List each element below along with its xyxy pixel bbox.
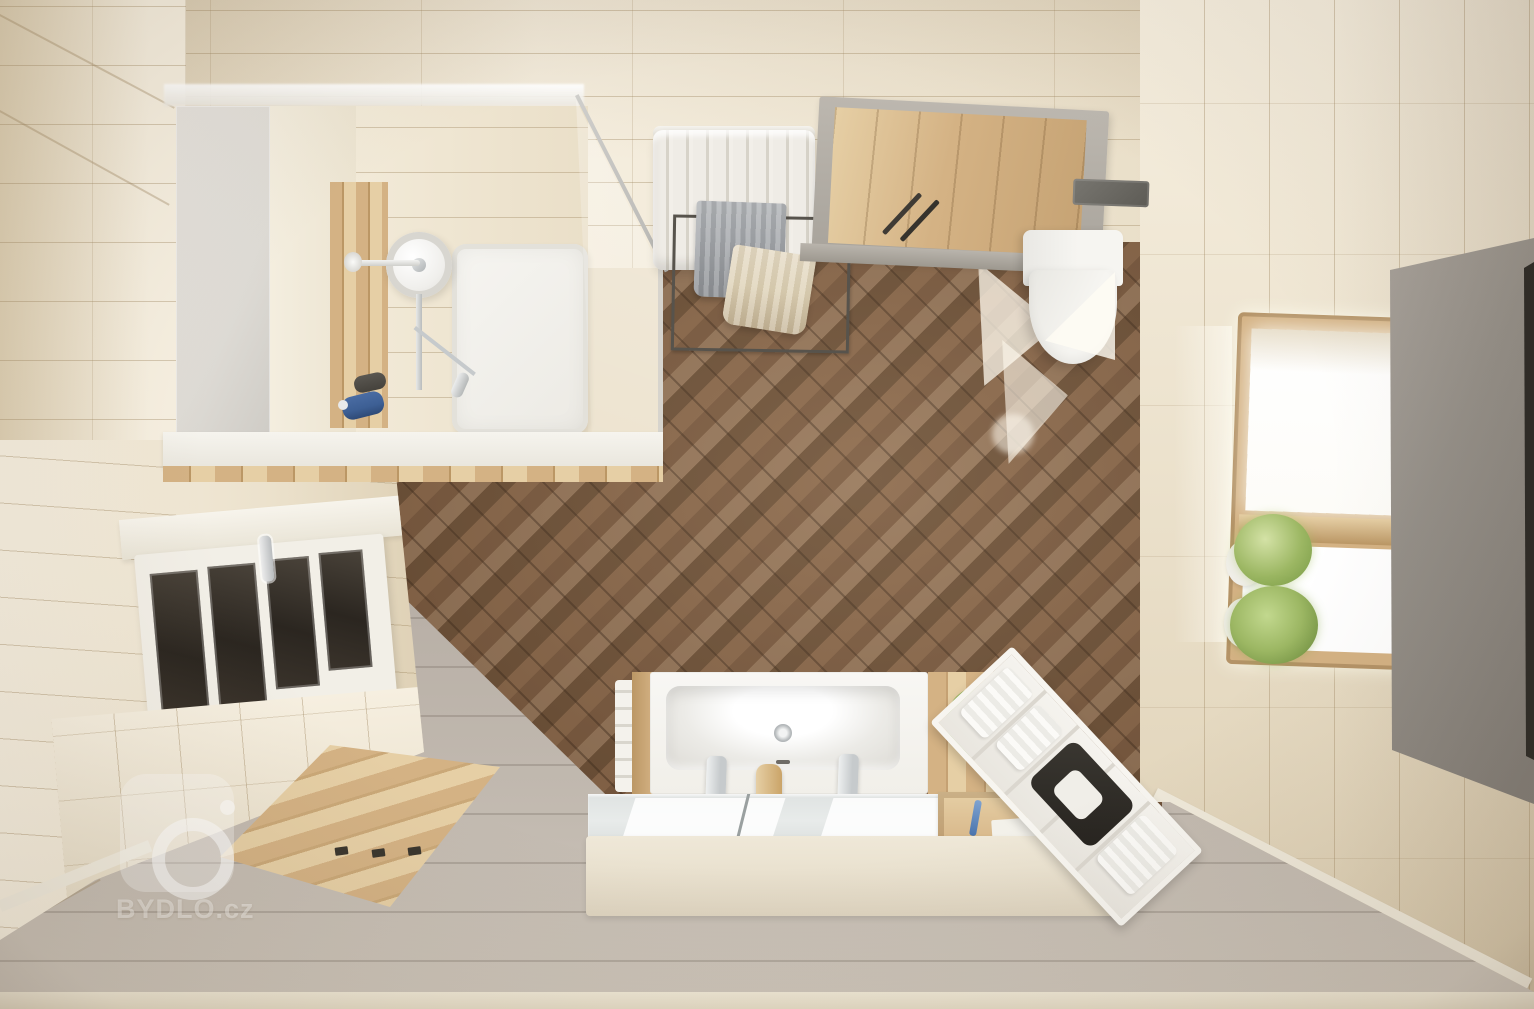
shower-arm-flange xyxy=(344,252,362,272)
window-pane xyxy=(150,570,211,724)
drain xyxy=(774,724,792,742)
gray-door-panel xyxy=(1384,232,1534,806)
window-pane xyxy=(318,549,372,670)
tub-front-panel xyxy=(586,836,1120,916)
toilet-group xyxy=(1015,172,1165,367)
shower-pipe xyxy=(416,294,422,390)
flush-plate xyxy=(1073,179,1150,208)
shower-half-wall-wood-edge xyxy=(163,466,663,482)
shower-half-wall-top xyxy=(163,432,663,468)
watermark: BYDLO.cz xyxy=(110,766,430,941)
bottle-cap xyxy=(338,400,348,410)
shower-top-edge xyxy=(164,84,584,106)
window-handle xyxy=(259,535,275,582)
overflow-slot xyxy=(776,760,790,764)
watermark-text: BYDLO.cz xyxy=(116,894,255,925)
sunlight-on-wall xyxy=(1174,326,1232,642)
plant xyxy=(1230,586,1318,664)
shower-tray xyxy=(452,244,588,434)
bathroom-top-view-render: BYDLO.cz xyxy=(0,0,1534,1009)
shower-corner xyxy=(158,80,670,484)
window-pane xyxy=(207,563,267,709)
camera-logo-icon xyxy=(120,774,234,892)
gray-cabinet xyxy=(176,106,270,436)
sunlight-patch xyxy=(992,414,1034,454)
shower-arm xyxy=(354,260,420,266)
camera-lens-ring-icon xyxy=(152,818,234,900)
plant xyxy=(1234,514,1312,586)
bottom-wall-edge xyxy=(0,992,1534,1009)
camera-flash-dot-icon xyxy=(220,800,235,815)
